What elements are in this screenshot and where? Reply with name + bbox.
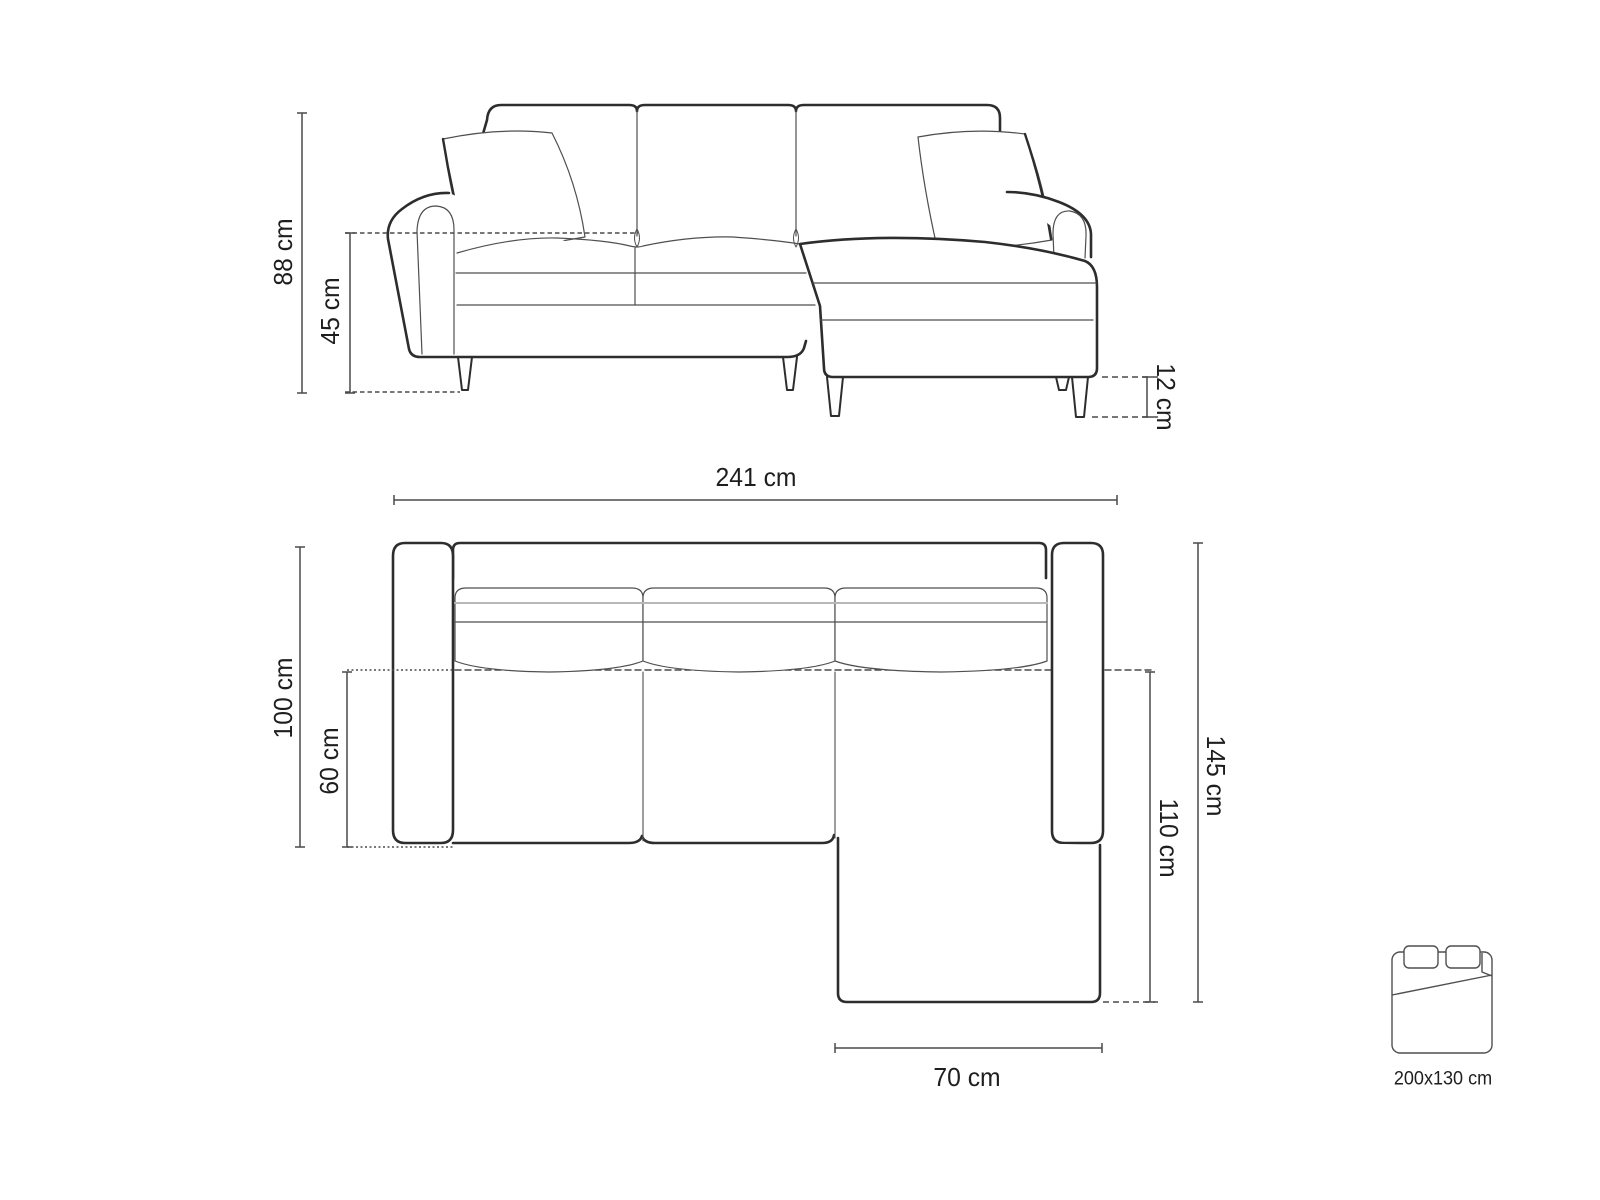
sofa-front-view (388, 105, 1097, 417)
chaise-width-label: 70 cm (933, 1064, 1000, 1090)
front-height-label: 88 cm (270, 218, 296, 285)
plan-total-depth-label: 145 cm (1203, 735, 1229, 816)
sofa-bed-icon (1392, 946, 1492, 1053)
plan-depth-label: 100 cm (270, 657, 296, 738)
diagram-canvas (0, 0, 1600, 1200)
total-width-label: 241 cm (715, 464, 796, 490)
front-leg-height-label: 12 cm (1153, 363, 1179, 430)
sofa-dimensions-diagram: 88 cm 45 cm 12 cm 241 cm 100 cm 60 cm 14… (0, 0, 1600, 1200)
sofa-top-view (393, 543, 1155, 1002)
bed-size-label: 200x130 cm (1394, 1070, 1492, 1089)
front-seat-height-label: 45 cm (317, 277, 343, 344)
chaise-length-label: 110 cm (1156, 798, 1182, 877)
plan-seat-depth-label: 60 cm (316, 727, 342, 794)
